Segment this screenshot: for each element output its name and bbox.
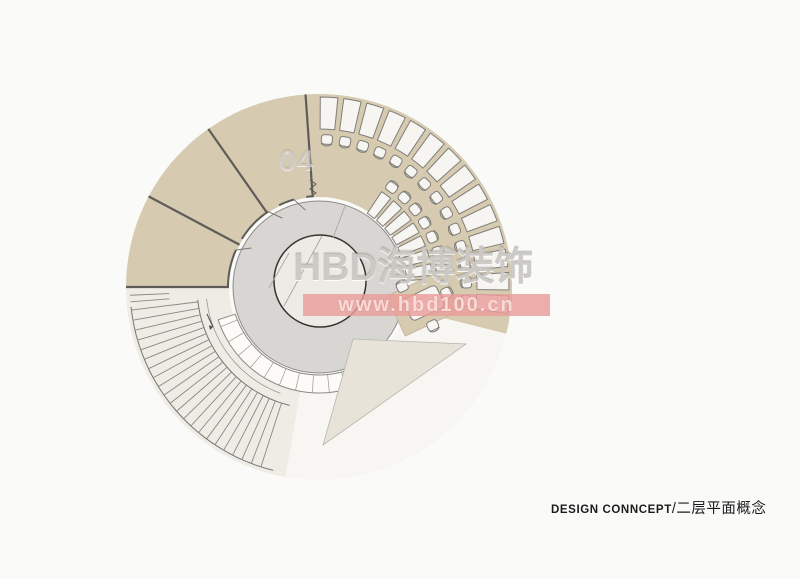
sheet-title-zh: /二层平面概念 xyxy=(672,497,767,518)
floor-plan-canvas: 04 HBD海博装饰 www.hbd100.cn DESIGN CONNCEPT… xyxy=(0,0,800,579)
watermark-brand-logo: HBD海博装饰 xyxy=(293,248,534,287)
watermark-url-band: www.hbd100.cn xyxy=(303,294,550,316)
sheet-title: DESIGN CONNCEPT /二层平面概念 xyxy=(551,497,766,518)
chair xyxy=(321,134,333,146)
watermark-page-number: 04 xyxy=(279,144,314,178)
floor-plan-svg xyxy=(0,0,800,579)
watermark-url-text: www.hbd100.cn xyxy=(338,295,514,315)
sheet-title-en: DESIGN CONNCEPT xyxy=(551,504,672,516)
